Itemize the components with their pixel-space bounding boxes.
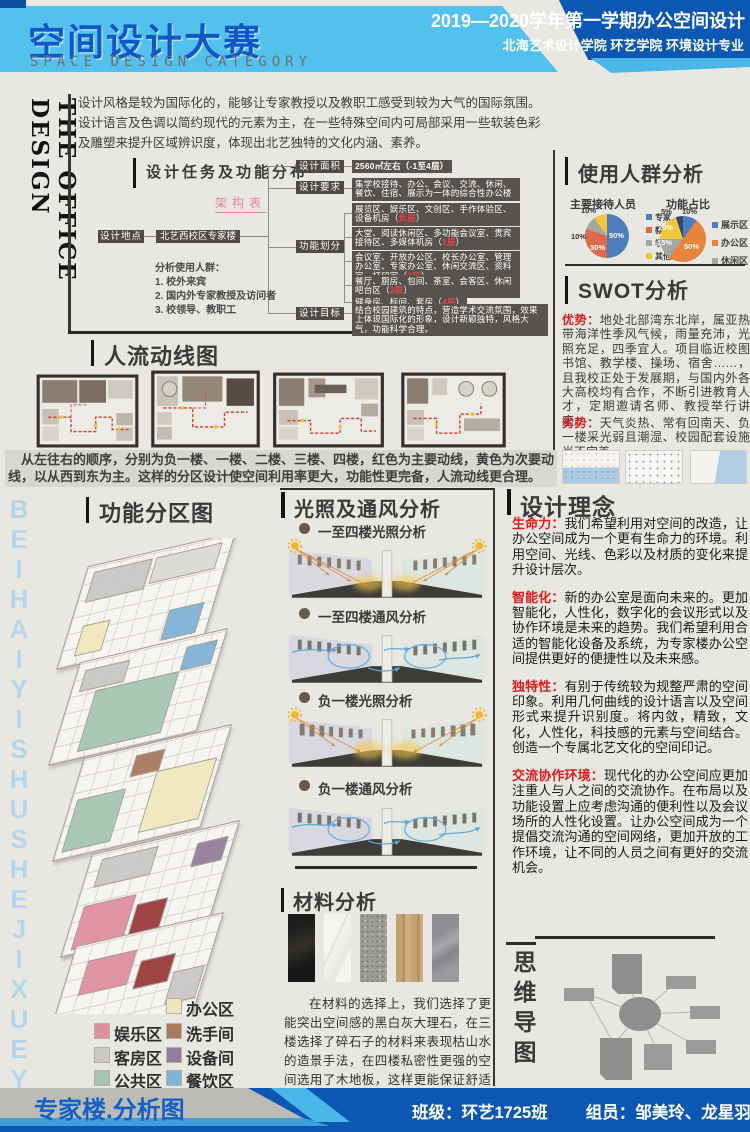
- footer-info: 班级：环艺1725班 组员：邹美玲、龙星羽、申成洁、付成军: [412, 1099, 750, 1123]
- func-item-text: 展览区、娱乐区、文创区、手作体验区、设备机房: [355, 204, 512, 224]
- sun-icon: [288, 539, 485, 552]
- material-swatch-white-marble: [324, 914, 351, 982]
- legend-swatch: [94, 1047, 110, 1063]
- header-corner-accent: [0, 0, 26, 8]
- task-subtitle: 架构表: [215, 194, 266, 213]
- audience-title: 使用人群分析: [578, 158, 704, 187]
- strengths-label: 优势：: [562, 313, 600, 327]
- pie-label: 5%: [661, 207, 672, 216]
- connector: [268, 188, 296, 189]
- mindmap-center-node: [619, 997, 661, 1031]
- ventilation-diagram-upper: [286, 623, 488, 684]
- zoning-title-bar: [86, 497, 89, 523]
- map-thumbnail-2: [625, 450, 683, 484]
- zone-patch: [148, 542, 222, 584]
- material-swatch-gray-marble: [432, 914, 459, 982]
- note-item: 2. 国内外专家教授及访问者: [155, 290, 276, 304]
- connector: [344, 213, 352, 214]
- note-title: 分析使用人群：: [155, 262, 276, 276]
- zone-patch: [78, 949, 138, 996]
- connector: [268, 247, 296, 248]
- mindmap-top-rule: [535, 936, 715, 939]
- axonometric-stack: [28, 538, 280, 1014]
- diagram-label-4: 负一楼通风分析: [318, 778, 413, 798]
- floor-plan-thumbnail-4: [400, 372, 507, 448]
- func-item-floor: 负层: [399, 213, 416, 223]
- swot-top-rule: [565, 264, 745, 266]
- concept-lead: 智能化：: [512, 590, 564, 605]
- materials-title: 材料分析: [293, 886, 377, 915]
- connector: [268, 166, 296, 167]
- mindmap-node: [666, 976, 696, 989]
- header-diagonal-stripe: [540, 58, 750, 73]
- legend-label: 办公区: [721, 238, 748, 248]
- func-item-0: 展览区、娱乐区、文创区、手作体验区、设备机房（负层）: [352, 203, 520, 226]
- legend-swatch: [646, 227, 652, 233]
- func-item-floor: 3层: [390, 285, 404, 295]
- circulation-caption: 从左往右的顺序，分别为负一楼、一楼、二楼、三楼、四楼，红色为主要动线，黄色为次要…: [5, 450, 557, 487]
- concept-text: 现代化的办公空间应更加注重人与人之间的交流协作。在布局以及功能设置上应考虑沟通的…: [512, 768, 748, 875]
- zoning-title: 功能分区图: [99, 496, 214, 528]
- task-req-value: 集学校接待、办公、会议、交流、休闲、餐饮、住宿、展示为一体的综合性办公楼: [352, 178, 520, 201]
- concept-paragraph-4: 交流协作环境：现代化的办公空间应更加注重人与人之间的交流协作。在布局以及功能设置…: [512, 768, 748, 876]
- lighting-title-bar: [281, 492, 285, 518]
- task-area-label: 设计面积: [296, 160, 344, 173]
- note-item: 3. 校领导、教职工: [155, 304, 276, 318]
- legend-label: 展示区: [721, 220, 748, 230]
- func-item-floor: 1层: [442, 237, 456, 247]
- legend-item: 展示区: [712, 218, 748, 231]
- legend-swatch: [94, 1070, 110, 1086]
- legend-label: 客房区: [114, 1045, 162, 1069]
- section-rule: [280, 488, 493, 490]
- material-swatch-black-marble: [288, 914, 315, 982]
- mindmap-node: [600, 1038, 632, 1080]
- column-divider: [493, 488, 495, 1086]
- concept-lead: 生命力：: [512, 516, 564, 531]
- column-divider: [553, 150, 555, 483]
- members-info: 组员：邹美玲、龙星羽、申成洁、付成军: [586, 1099, 750, 1123]
- legend-swatch: [94, 1023, 110, 1039]
- legend-swatch: [646, 253, 652, 259]
- circulation-title: 人流动线图: [104, 339, 219, 371]
- legend-swatch: [166, 1047, 182, 1063]
- pie1-title: 主要接待人员: [570, 196, 636, 212]
- legend-swatch: [166, 998, 182, 1014]
- swot-strengths: 优势：地处北部湾东北岸，属亚热带海洋性季风气候，雨量充沛，光照充足，四季宜人。项…: [562, 313, 750, 428]
- mindmap-node: [690, 1006, 720, 1019]
- func-item-text: 餐厅、厨房、包间、茶室、会客区、休闲吧台区: [355, 276, 512, 296]
- swot-title: SWOT分析: [578, 275, 689, 305]
- task-goal-label: 设计目标: [296, 307, 344, 320]
- swot-title-bar: [565, 276, 568, 304]
- task-location-label: 设计地点: [98, 230, 144, 243]
- floor-plan-thumbnail-3: [271, 372, 386, 448]
- legend-swatch: [712, 240, 718, 246]
- mindmap-title-rule: [506, 942, 536, 945]
- strengths-text: 地处北部湾东北岸，属亚热带海洋性季风气候，雨量充沛，光照充足，四季宜人。项目临近…: [562, 313, 750, 428]
- legend-swatch: [712, 222, 718, 228]
- audience-title-bar: [565, 157, 568, 185]
- legend-label: 办公区: [186, 996, 234, 1020]
- sunlight-diagram-basement: [286, 707, 488, 768]
- connector: [344, 313, 352, 314]
- bullet-icon: [299, 692, 310, 703]
- poster-board: 空间设计大赛 SPACE DESIGN CATEGORY 2019—2020学年…: [0, 0, 750, 1132]
- mindmap-graph: [548, 946, 748, 1088]
- map-thumbnail-1: [562, 450, 620, 484]
- ventilation-diagram-basement: [286, 796, 488, 857]
- zone-patch: [61, 788, 126, 852]
- mindmap-node: [686, 1040, 716, 1054]
- task-req-label: 设计要求: [296, 181, 344, 194]
- intro-left-rule: [68, 94, 71, 332]
- user-analysis-note: 分析使用人群： 1. 校外来宾 2. 国内外专家教授及访问者 3. 校领导、教职…: [155, 262, 276, 318]
- zone-patch: [74, 619, 111, 656]
- connector: [344, 285, 352, 286]
- pie-label: 50%: [684, 242, 699, 251]
- zone-patch: [179, 640, 218, 671]
- connector: [344, 237, 352, 238]
- legend-item: 办公区: [712, 236, 748, 249]
- materials-title-bar: [281, 888, 284, 912]
- mindmap-node: [612, 954, 642, 994]
- floor-plan-thumbnail-2: [150, 370, 261, 448]
- intro-text: 设计风格是较为国际化的，能够让专家教授以及教职工感受到较为大气的国际氛围。 设计…: [78, 93, 550, 153]
- mindmap-node: [644, 1044, 672, 1070]
- connector: [344, 302, 352, 303]
- pie-label: 10%: [682, 207, 697, 216]
- circulation-title-bar: [91, 340, 94, 366]
- material-swatch-terrazzo: [360, 914, 387, 982]
- mindmap-node: [564, 988, 594, 1001]
- legend-label: 娱乐区: [114, 1021, 162, 1045]
- bullet-icon: [299, 523, 310, 534]
- task-title: 设计任务及功能分布: [146, 161, 308, 182]
- pie-label: 50%: [609, 231, 624, 240]
- concept-paragraphs: 生命力：我们希望利用对空间的改造，让办公空间成为一个更有生命力的环境。利用空间、…: [512, 516, 748, 888]
- pie-label: 15%: [657, 238, 672, 247]
- task-func-label: 功能划分: [296, 240, 344, 253]
- bullet-icon: [299, 608, 310, 619]
- zone-patch: [85, 558, 153, 602]
- pie-label: 10%: [581, 206, 596, 215]
- lighting-title: 光照及通风分析: [294, 493, 441, 522]
- task-area-value: 2560㎡左右（-1至4层）: [352, 160, 452, 173]
- legend-label: 洗手间: [186, 1021, 234, 1045]
- connector: [344, 188, 352, 189]
- func-item-1: 大堂、阅读休闲区、多功能会议室、贵宾接待区、多媒体机房（1层）: [352, 227, 520, 250]
- pie-label: 30%: [590, 243, 605, 252]
- concept-lead: 独特性：: [512, 679, 564, 694]
- connector: [144, 236, 156, 237]
- func-item-3: 餐厅、厨房、包间、茶室、会客区、休闲吧台区（3层）: [352, 275, 520, 298]
- pie-label: 10%: [571, 232, 586, 241]
- func-item-text: 大堂、阅读休闲区、多功能会议室、贵宾接待区、多媒体机房: [355, 228, 512, 248]
- pie-label: 20%: [658, 223, 673, 232]
- bullet-icon: [299, 780, 310, 791]
- bracket: [344, 213, 345, 302]
- materials-top-rule: [295, 866, 477, 869]
- concept-paragraph-3: 独特性：有别于传统较为规整严肃的空间印象。利用几何曲线的设计语言以及空间形式来提…: [512, 679, 748, 756]
- weaknesses-label: 劣势：: [562, 416, 600, 430]
- pie-chart-functions: 10% 50% 15% 20% 5%: [660, 216, 706, 262]
- legend-swatch: [646, 214, 652, 220]
- header-school-line: 北海艺术设计学院 环艺学院 环境设计专业: [503, 35, 744, 54]
- note-item: 1. 校外来宾: [155, 276, 276, 290]
- sunlight-diagram-upper: [286, 538, 488, 599]
- floor-plan-thumbnail-1: [36, 374, 139, 448]
- material-swatch-wood: [396, 914, 423, 982]
- connector: [344, 166, 352, 167]
- mindmap-title: 思维导图: [506, 950, 540, 1070]
- concept-lead: 交流协作环境：: [512, 768, 604, 783]
- legend-swatch: [646, 240, 652, 246]
- zone-patch: [190, 836, 229, 867]
- concept-paragraph-2: 智能化：新的办公室是面向未来的。更加智能化，人性化，数字化的会议形式以及协作环境…: [512, 590, 748, 667]
- connector: [240, 236, 268, 237]
- board-title: 专家楼.分析图: [34, 1090, 185, 1125]
- map-thumbnail-3: [690, 450, 747, 484]
- task-title-bar: [133, 158, 136, 188]
- task-location-value: 北艺西校区专家楼: [156, 230, 240, 243]
- legend-label: 设备间: [186, 1045, 234, 1069]
- legend-swatch: [166, 1023, 182, 1039]
- class-info: 班级：环艺1725班: [412, 1099, 548, 1123]
- header-term-line: 2019—2020学年第一学期办公空间设计: [431, 7, 745, 33]
- page-subtitle: SPACE DESIGN CATEGORY: [30, 54, 312, 70]
- task-goal-value: 结合校园建筑的特点，营造学术交流氛围，效果上体现国际化的形象，设计新颖独特，风格…: [352, 304, 548, 336]
- sun-icon: [288, 708, 485, 721]
- vertical-english-title: THE OFFICE DESIGN: [26, 98, 80, 343]
- zone-patch: [93, 846, 158, 888]
- connector: [344, 261, 352, 262]
- concept-paragraph-1: 生命力：我们希望利用对空间的改造，让办公空间成为一个更有生命力的环境。利用空间、…: [512, 516, 748, 578]
- legend-swatch: [166, 1070, 182, 1086]
- pie-chart-recipients: 50% 30% 10% 10%: [585, 214, 629, 258]
- concept-title-bar: [507, 489, 511, 515]
